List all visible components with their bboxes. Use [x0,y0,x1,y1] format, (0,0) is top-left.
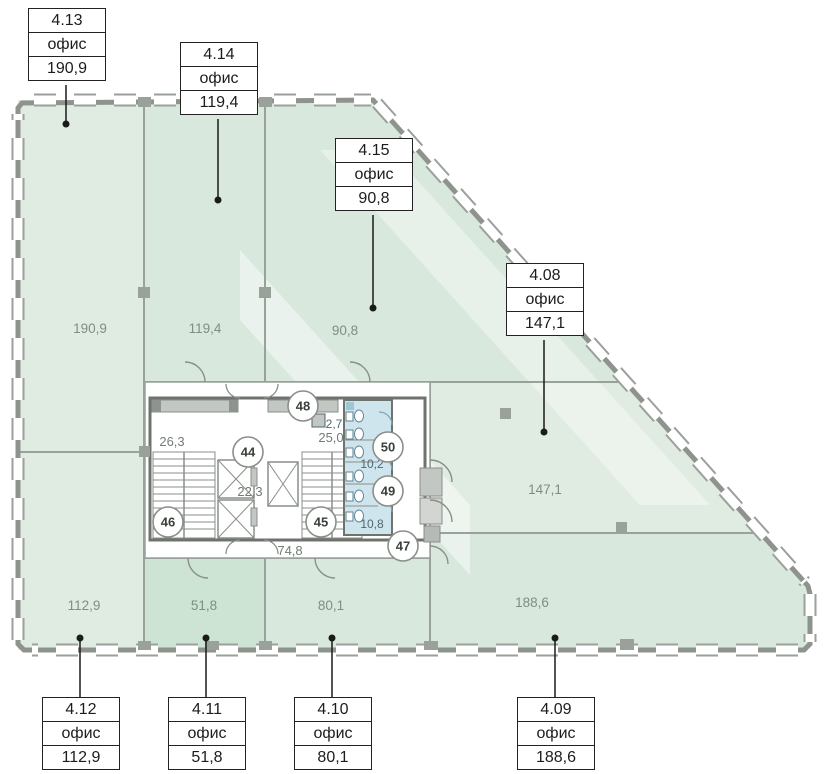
unit-number: 4.11 [169,698,245,721]
svg-text:49: 49 [381,484,395,499]
unit-number: 4.08 [507,264,583,287]
area-label-4.14: 119,4 [189,321,222,336]
unit-area: 147,1 [507,311,583,335]
callout-unit-4-11: 4.11 офис 51,8 [168,697,246,770]
unit-area: 190,9 [29,56,105,80]
storage-area-label: 2,7 [326,417,343,431]
wc-lower-area-label: 10,8 [360,517,384,531]
callout-unit-4-08: 4.08 офис 147,1 [506,263,584,336]
duct-strip-left [152,400,238,412]
unit-type: офис [29,32,105,56]
room-4.09 [430,533,810,650]
unit-number: 4.14 [181,43,257,66]
duct-cap [229,400,238,412]
room-4.13 [18,100,144,452]
room-4.10 [265,558,430,650]
marker-44: 44 [233,437,263,467]
area-label-4.11: 51,8 [191,598,217,613]
unit-type: офис [336,162,412,186]
core-block [150,384,425,554]
unit-type: офис [518,721,594,745]
elevator-shaft-right [268,462,298,506]
marker-47: 47 [388,531,418,561]
marker-48: 48 [288,391,318,421]
area-label-4.15: 90,8 [332,323,358,338]
room-4.14 [144,100,265,382]
svg-text:45: 45 [314,515,328,530]
callout-unit-4-09: 4.09 офис 188,6 [517,697,595,770]
unit-area: 119,4 [181,90,257,114]
area-label-4.10: 80,1 [318,598,344,613]
callout-unit-4-14: 4.14 офис 119,4 [180,42,258,115]
unit-number: 4.15 [336,139,412,162]
callout-unit-4-15: 4.15 офис 90,8 [335,138,413,211]
callout-unit-4-12: 4.12 офис 112,9 [42,697,120,770]
unit-area: 90,8 [336,186,412,210]
unit-area: 51,8 [169,745,245,769]
corridor-area-label: 74,8 [277,543,302,558]
stair-right-area-label: 25,0 [318,430,343,445]
area-label-4.08: 147,1 [528,482,562,497]
callout-unit-4-10: 4.10 офис 80,1 [294,697,372,770]
callout-unit-4-13: 4.13 офис 190,9 [28,8,106,81]
unit-type: офис [43,721,119,745]
unit-number: 4.10 [295,698,371,721]
wc-fixture [346,402,354,410]
unit-area: 80,1 [295,745,371,769]
lobby-area-label: 22,3 [237,484,262,499]
unit-number: 4.13 [29,9,105,32]
stair-left-area-label: 26,3 [159,434,184,449]
svg-text:46: 46 [161,515,175,530]
unit-type: офис [507,287,583,311]
area-label-4.09: 188,6 [515,595,549,610]
unit-type: офис [169,721,245,745]
svg-text:44: 44 [241,445,256,460]
marker-49: 49 [373,476,403,506]
floor-plan-canvas: 190,9 119,4 90,8 147,1 112,9 51,8 80,1 1… [0,0,829,774]
svg-text:47: 47 [396,539,410,554]
unit-area: 112,9 [43,745,119,769]
unit-type: офис [181,66,257,90]
svg-text:50: 50 [381,440,395,455]
unit-number: 4.09 [518,698,594,721]
area-label-4.12: 112,9 [68,598,101,613]
unit-area: 188,6 [518,745,594,769]
area-label-4.13: 190,9 [73,321,107,336]
unit-type: офис [295,721,371,745]
svg-text:48: 48 [296,399,310,414]
marker-50: 50 [373,432,403,462]
marker-45: 45 [306,507,336,537]
room-4.12 [18,452,144,650]
unit-number: 4.12 [43,698,119,721]
duct-cap [152,400,161,412]
floor-plan-drawing: 190,9 119,4 90,8 147,1 112,9 51,8 80,1 1… [0,0,829,774]
marker-46: 46 [153,507,183,537]
